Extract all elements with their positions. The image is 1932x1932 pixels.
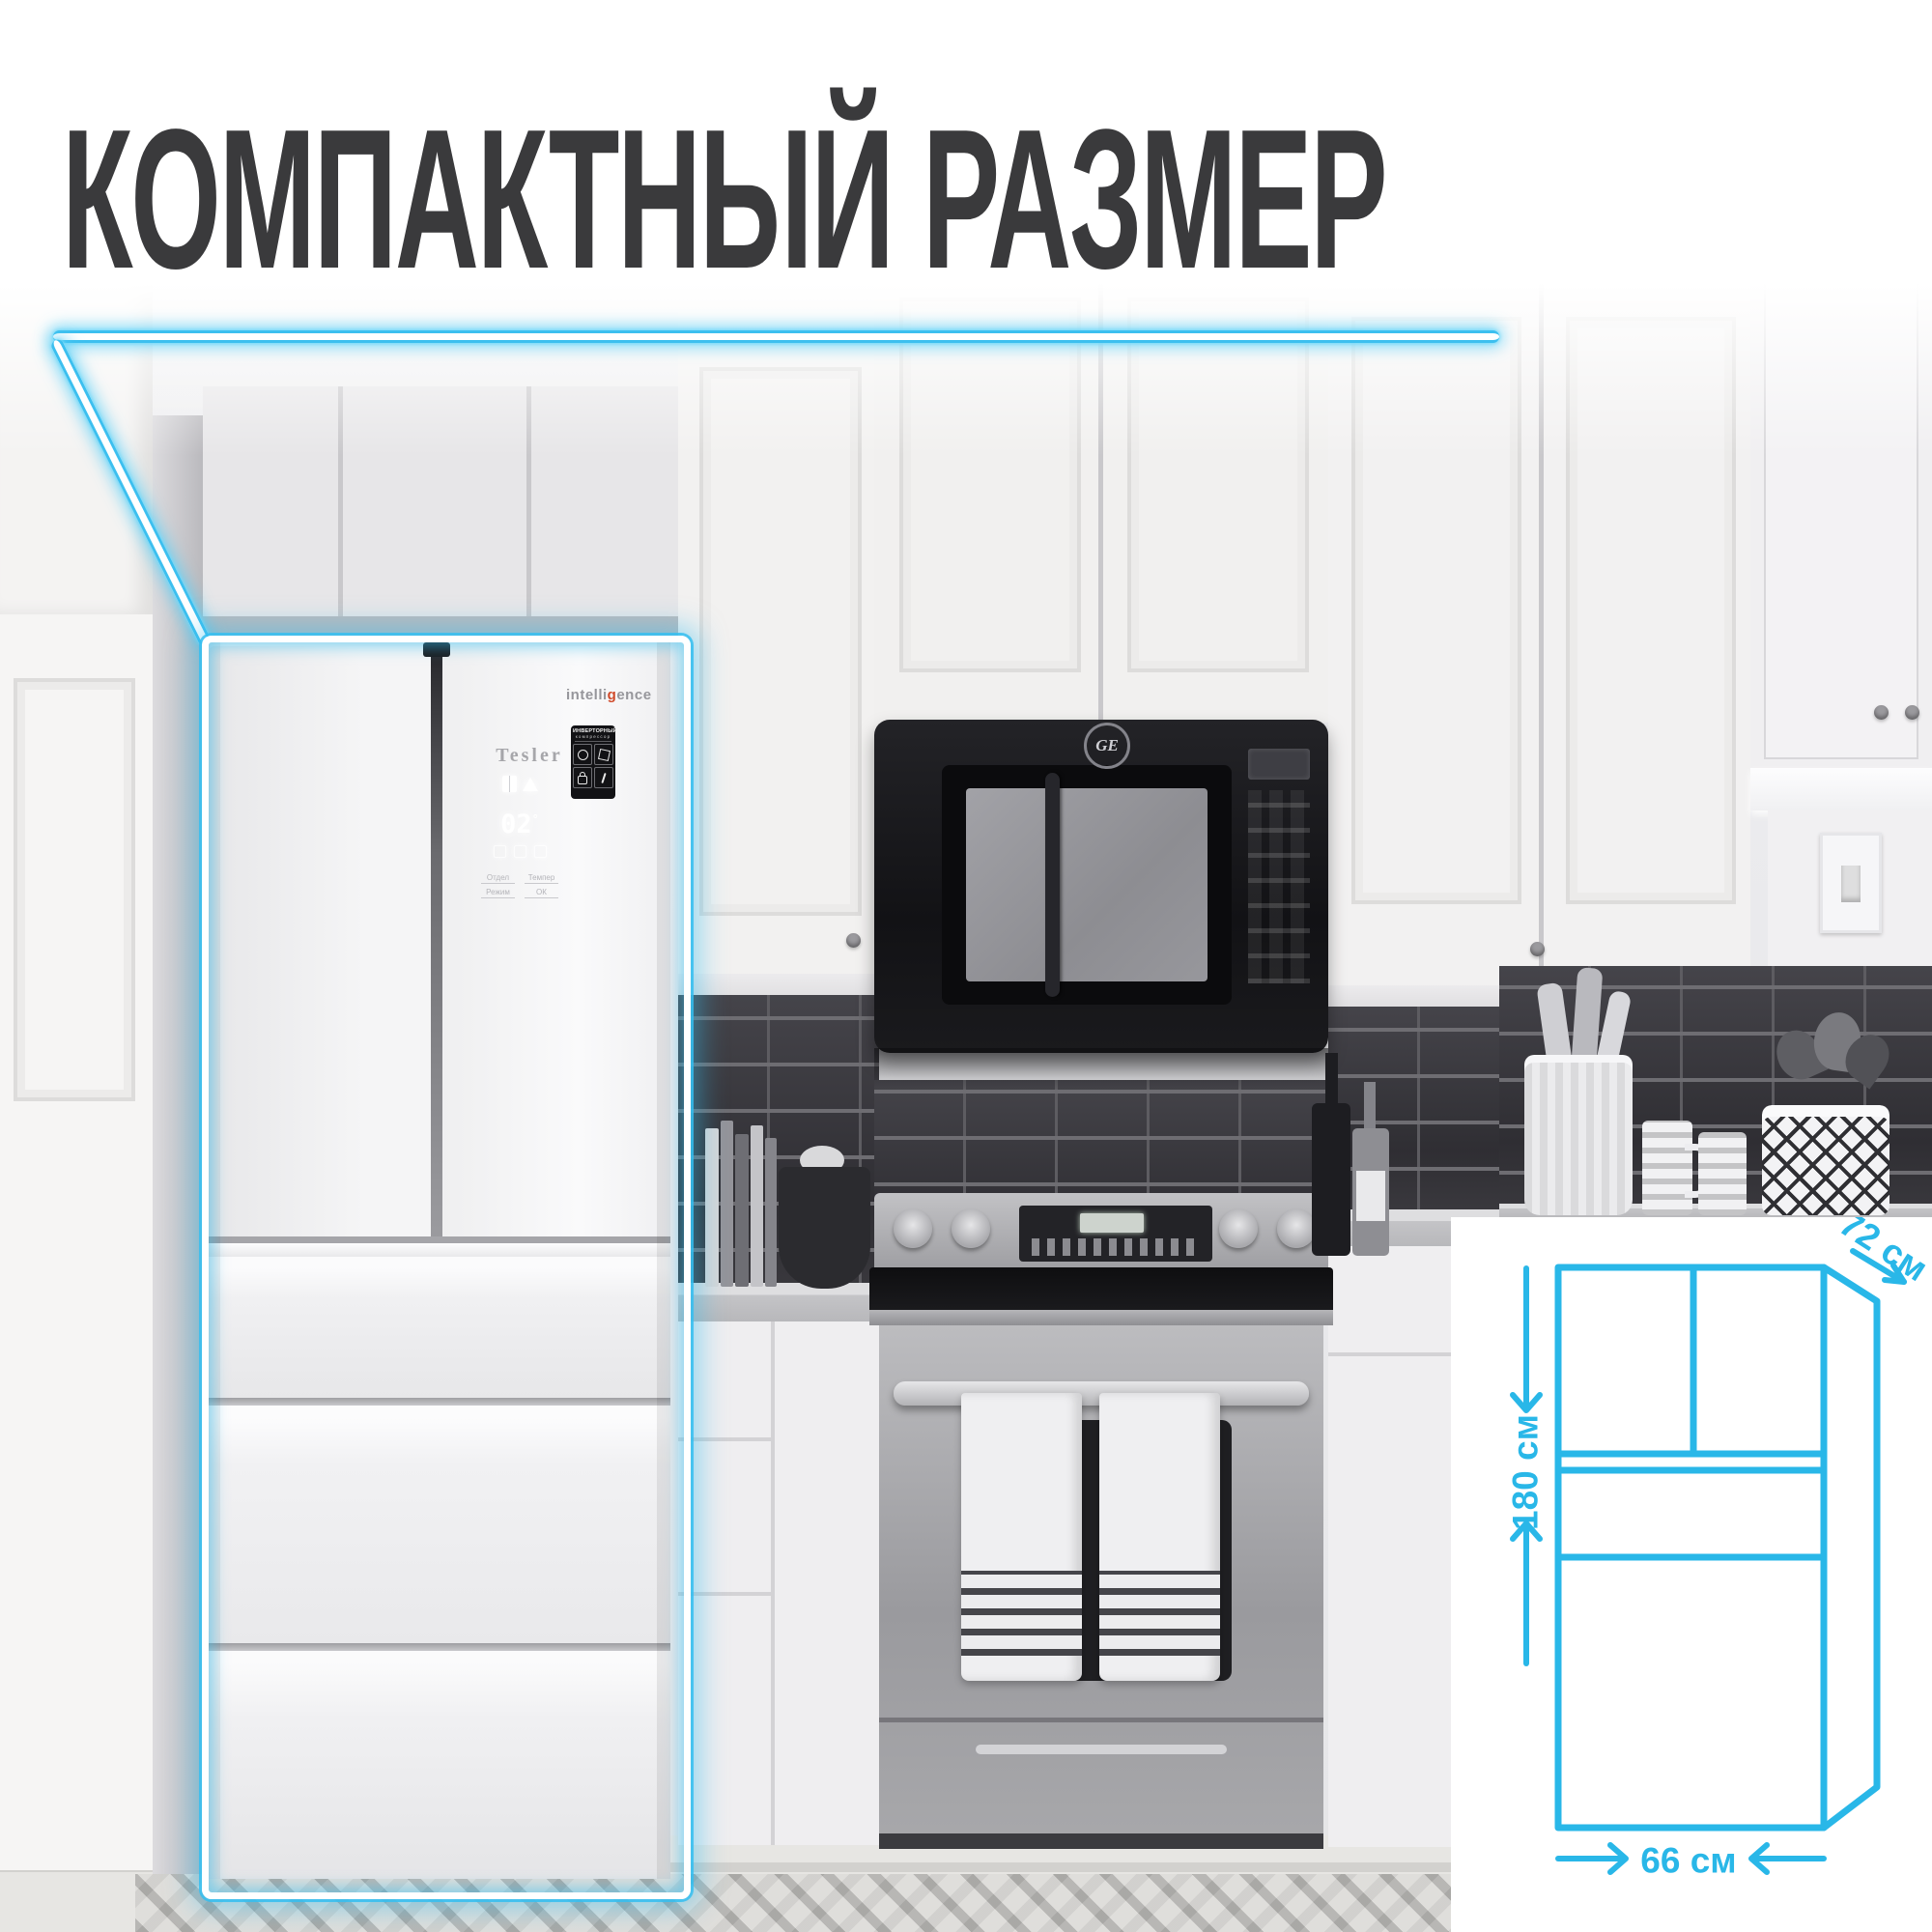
- towel: [1099, 1393, 1220, 1681]
- page-title: КОМПАКТНЫЙ РАЗМЕР: [62, 85, 1531, 314]
- countertop: [678, 1283, 879, 1323]
- microwave-display: [1248, 749, 1310, 780]
- cabinet-knob: [1905, 705, 1919, 720]
- product-banner: GE: [0, 0, 1932, 1932]
- stove-knob: [1219, 1209, 1258, 1248]
- drawer-line: [678, 1592, 771, 1596]
- utensil-crock: [1524, 1055, 1633, 1215]
- microwave-screen: [966, 788, 1207, 981]
- cabinet-knob: [1874, 705, 1889, 720]
- cabinet-knob: [846, 933, 861, 948]
- oven-drawer-handle: [976, 1745, 1227, 1754]
- stove-display: [1080, 1213, 1144, 1233]
- diagram-fridge-side: [1824, 1267, 1877, 1828]
- left-wainscot: [0, 614, 156, 1870]
- drawer-line: [678, 1437, 771, 1441]
- book: [735, 1134, 749, 1287]
- book: [751, 1125, 763, 1287]
- cooktop-edge: [869, 1310, 1333, 1325]
- dimension-diagram: 180 см 66 см 72 см: [1451, 1217, 1932, 1932]
- towel-stripes: [1099, 1571, 1220, 1656]
- depth-label: 72 см: [1833, 1217, 1932, 1289]
- width-label: 66 см: [1640, 1841, 1736, 1881]
- stove-knob: [1277, 1209, 1316, 1248]
- wainscot-panel: [14, 678, 135, 1101]
- oil-bottle-neck: [1325, 1053, 1338, 1107]
- under-cabinet-light: [1750, 768, 1932, 810]
- light-switch-toggle: [1841, 866, 1861, 902]
- towel: [961, 1393, 1082, 1681]
- oil-bottle: [1312, 1103, 1350, 1256]
- dimension-panel: 180 см 66 см 72 см: [1451, 1217, 1932, 1932]
- oven-base: [879, 1833, 1323, 1849]
- ge-logo-icon: GE: [1084, 723, 1130, 769]
- base-cabinet: [678, 1321, 879, 1845]
- microwave-handle: [1045, 773, 1060, 997]
- microwave-brand: GE: [1095, 736, 1119, 755]
- stove-buttons: [1032, 1238, 1202, 1256]
- oil-bottle-neck: [1364, 1082, 1376, 1132]
- oven-drawer-line: [879, 1718, 1323, 1722]
- stove-knob: [952, 1209, 990, 1248]
- height-label: 180 см: [1506, 1414, 1546, 1530]
- microwave-keypad: [1248, 790, 1310, 983]
- book: [721, 1121, 733, 1287]
- cooktop: [869, 1267, 1333, 1316]
- stove-knob: [894, 1209, 932, 1248]
- mixing-bowl: [779, 1167, 870, 1289]
- fridge-highlight-box: [202, 636, 691, 1899]
- book: [765, 1138, 777, 1287]
- callout-line-horizontal: [53, 330, 1499, 343]
- towel-stripes: [961, 1571, 1082, 1656]
- cabinet-seam: [771, 1321, 775, 1845]
- bottle-label: [1356, 1171, 1385, 1221]
- mug: [1698, 1132, 1747, 1215]
- plant-pot: [1762, 1105, 1889, 1215]
- book: [705, 1128, 719, 1287]
- microwave-vent-shadow: [874, 1048, 1328, 1091]
- cabinet-knob: [1530, 942, 1545, 956]
